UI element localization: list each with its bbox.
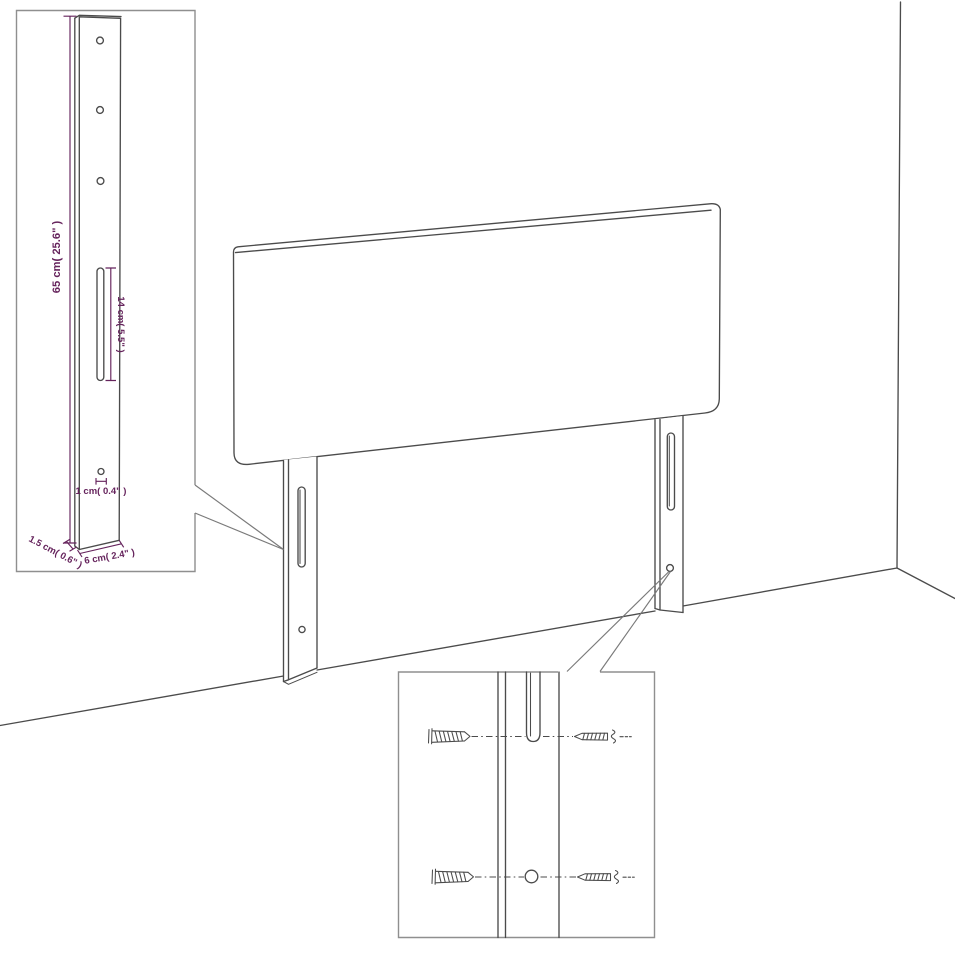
inset-callout-line bbox=[195, 485, 284, 550]
headboard-leg-right bbox=[567, 416, 683, 672]
leg-left-slot bbox=[298, 487, 305, 567]
floor-line-left-mid bbox=[317, 611, 655, 670]
headboard-dimension-diagram: 65 cm( 25.6" ) 14 cm( 5.5" ) 1 cm( 0.4" … bbox=[0, 0, 955, 955]
leg-right-slot bbox=[667, 433, 674, 510]
floor-line-left bbox=[0, 676, 284, 726]
floor-line-right bbox=[897, 568, 955, 599]
headboard-panel bbox=[234, 204, 721, 465]
inset-callout-line bbox=[195, 513, 284, 550]
hole-callout-line bbox=[567, 572, 669, 672]
wall-corner-line bbox=[897, 2, 901, 568]
floor-line-left-near-corner bbox=[683, 568, 897, 606]
leg-left-hole bbox=[299, 626, 305, 632]
diagram-canvas: 65 cm( 25.6" ) 14 cm( 5.5" ) 1 cm( 0.4" … bbox=[0, 0, 955, 955]
dim-height-label: 65 cm( 25.6" ) bbox=[51, 220, 63, 293]
leg-right-hole bbox=[667, 565, 674, 572]
hole-callout-line bbox=[600, 572, 671, 672]
headboard bbox=[234, 204, 721, 465]
headboard-leg-left bbox=[284, 457, 318, 685]
dim-slot-label: 14 cm( 5.5" ) bbox=[115, 296, 126, 352]
dim-hole-label: 1 cm( 0.4" ) bbox=[76, 486, 127, 497]
hardware-inset bbox=[399, 672, 655, 938]
